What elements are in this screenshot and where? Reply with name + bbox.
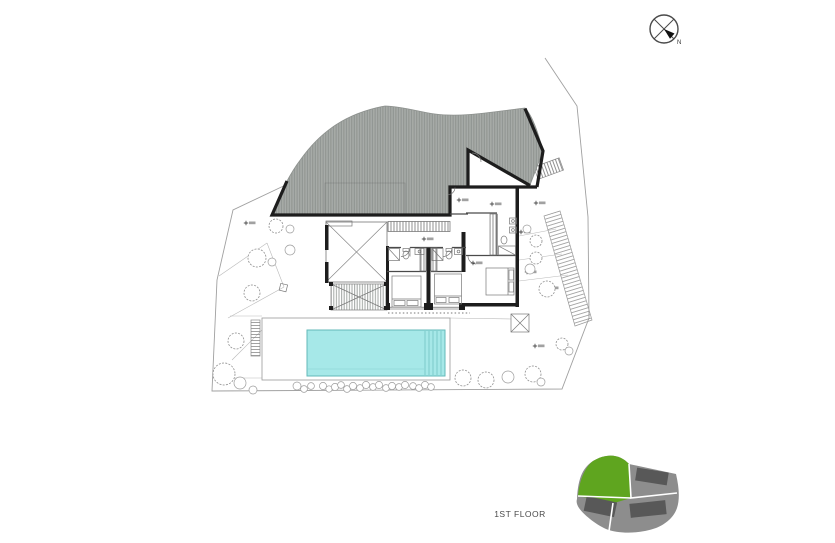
floor-plan-page: N 1ST FLOOR bbox=[0, 0, 835, 543]
garden-stair-path bbox=[544, 211, 592, 326]
swimming-pool bbox=[307, 330, 445, 376]
floor-plan-canvas: N 1ST FLOOR bbox=[0, 0, 835, 543]
garden-steps-icon bbox=[251, 320, 260, 356]
floor-title: 1ST FLOOR bbox=[494, 509, 546, 519]
square-feature bbox=[511, 314, 529, 332]
void-room bbox=[325, 221, 387, 283]
staircase bbox=[388, 222, 450, 232]
bedroom-1 bbox=[389, 248, 427, 308]
compass: N bbox=[650, 15, 681, 46]
bed bbox=[392, 276, 421, 307]
roof bbox=[272, 106, 543, 215]
wood-deck bbox=[329, 282, 388, 310]
compass-north-label: N bbox=[677, 40, 681, 46]
bed bbox=[486, 268, 514, 295]
bed bbox=[435, 274, 462, 304]
bedroom-2 bbox=[431, 248, 463, 305]
site-key-map bbox=[577, 456, 679, 533]
